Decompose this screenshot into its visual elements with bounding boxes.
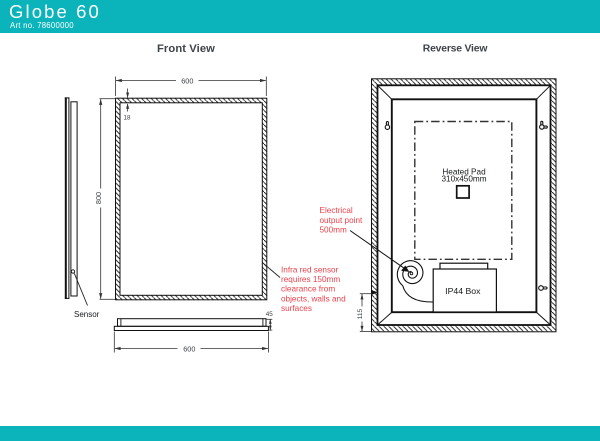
svg-text:Infra red sensor: Infra red sensor <box>281 265 339 274</box>
svg-text:800: 800 <box>94 192 103 204</box>
svg-text:115: 115 <box>357 308 364 319</box>
svg-text:Front View: Front View <box>157 43 215 55</box>
svg-text:objects, walls and: objects, walls and <box>281 294 346 303</box>
svg-text:Reverse View: Reverse View <box>423 44 489 55</box>
svg-text:500mm: 500mm <box>320 226 347 235</box>
svg-text:IP44 Box: IP44 Box <box>445 286 481 296</box>
svg-text:18: 18 <box>123 115 131 122</box>
svg-text:310x450mm: 310x450mm <box>441 175 486 184</box>
svg-text:600: 600 <box>181 76 193 85</box>
svg-text:requires 150mm: requires 150mm <box>281 275 340 284</box>
svg-text:output point: output point <box>320 216 364 225</box>
svg-text:Electrical: Electrical <box>320 206 353 215</box>
svg-text:Sensor: Sensor <box>74 310 100 319</box>
svg-text:45: 45 <box>266 311 274 318</box>
svg-text:clearance from: clearance from <box>281 285 335 294</box>
svg-text:surfaces: surfaces <box>281 304 312 313</box>
svg-text:600: 600 <box>183 344 195 353</box>
